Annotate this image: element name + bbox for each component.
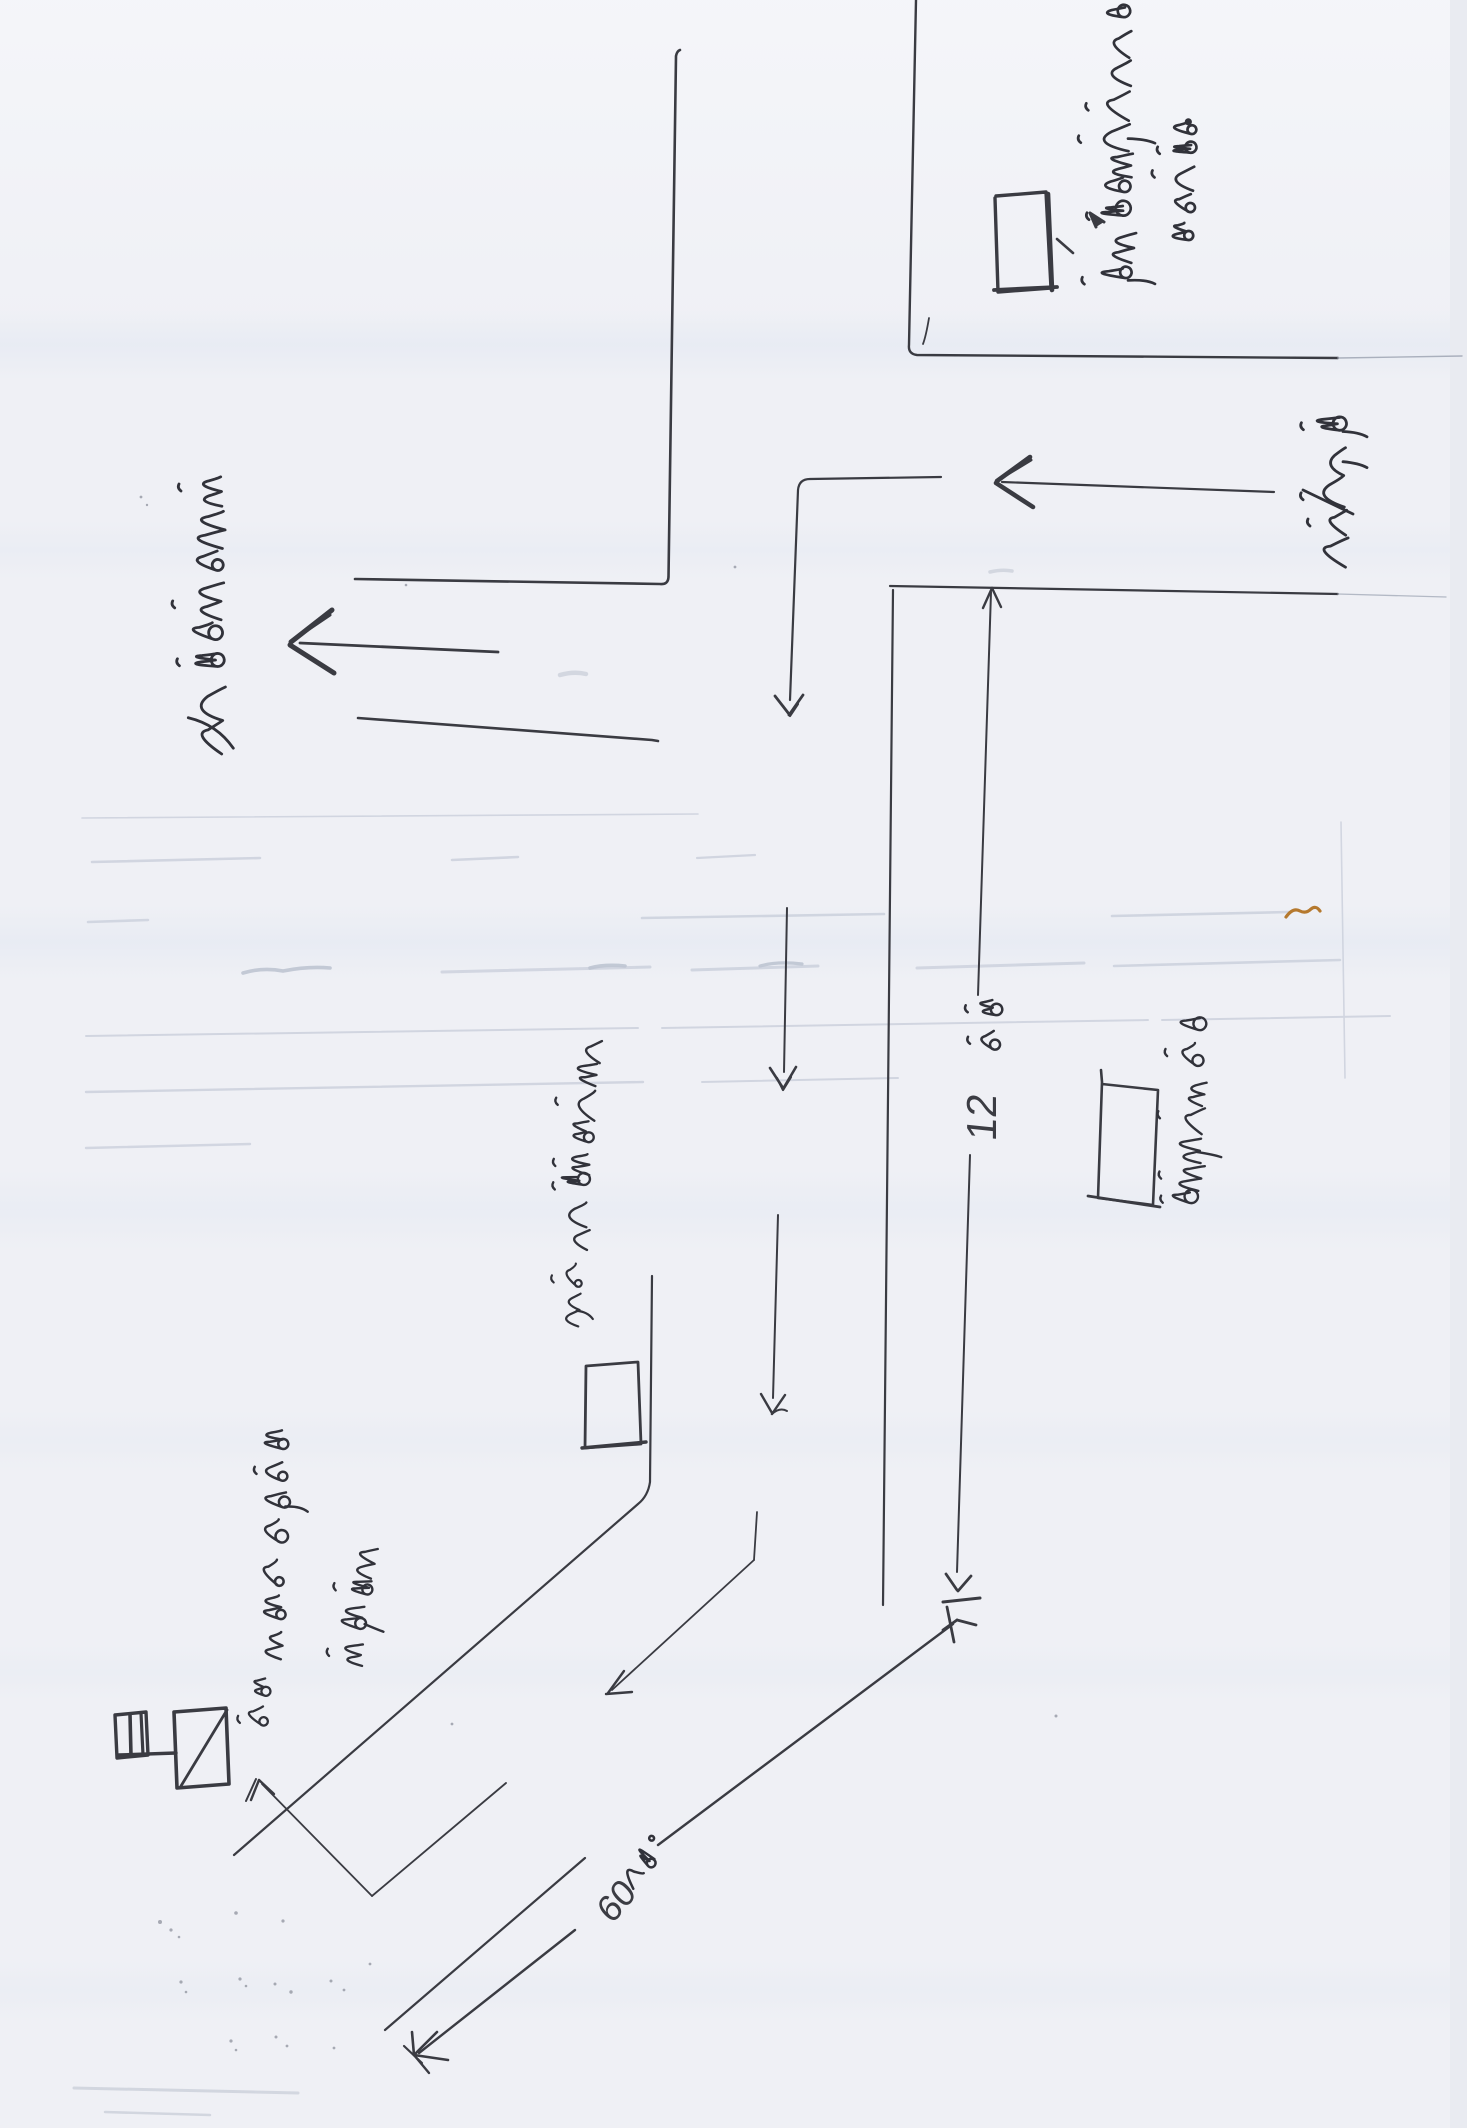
svg-text:12: 12 [958, 1091, 1005, 1143]
